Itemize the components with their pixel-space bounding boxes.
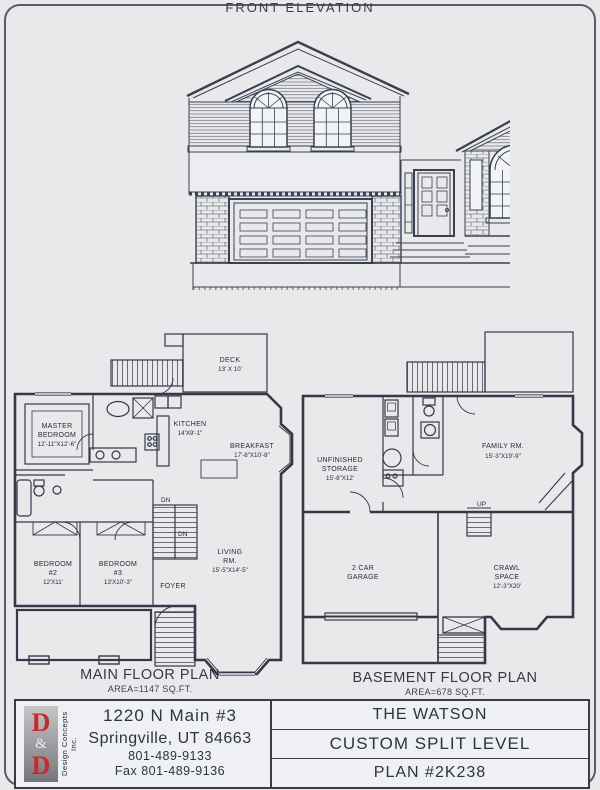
interior-walls-main — [15, 394, 153, 606]
plan-sheet: FRONT ELEVATION — [0, 0, 600, 790]
kitchen-counters — [145, 396, 237, 478]
logo-company-name-vertical: Design Concepts Inc. — [60, 706, 72, 782]
master-bedroom-label2: BEDROOM — [38, 432, 76, 439]
deck-label: DECK — [220, 357, 241, 364]
interior-walls-basement — [303, 396, 573, 663]
entry-door — [390, 160, 470, 263]
main-stairs — [153, 505, 197, 559]
logo-letter-d2: D — [32, 753, 51, 779]
logo-letter-d1: D — [32, 710, 51, 736]
breakfast-label: BREAKFAST — [230, 443, 274, 450]
living-room-size: 15'-5"X14'-5" — [212, 567, 248, 574]
kitchen-size: 14'X9'-1" — [178, 430, 203, 437]
garage-label: 2 CAR — [352, 565, 374, 572]
bedroom2-label: BEDROOM — [34, 561, 72, 568]
crawl-space-label: CRAWL — [494, 565, 521, 572]
basement-floor-plan-drawing: UNFINISHED STORAGE 15'-8"X12' FAMILY RM.… — [295, 330, 595, 680]
main-floor-plan-caption: MAIN FLOOR PLAN AREA=1147 SQ.FT. — [5, 667, 295, 694]
front-elevation-drawing — [90, 10, 510, 290]
crawl-space-size: 12'-3"X20' — [493, 583, 521, 590]
stairs-dn-label-2: DN — [178, 531, 188, 538]
kitchen-label: KITCHEN — [174, 421, 207, 428]
plan-name: THE WATSON — [272, 701, 588, 729]
garage-door — [229, 199, 372, 263]
basement-floor-plan-area: AREA=678 SQ.FT. — [295, 687, 595, 697]
company-address: 1220 N Main #3 Springville, UT 84663 801… — [74, 704, 266, 779]
deck-stairs-basement — [407, 362, 485, 392]
plan-type: CUSTOM SPLIT LEVEL — [272, 729, 588, 758]
ground-and-footing — [190, 263, 510, 290]
brick-lower-level — [196, 196, 401, 263]
stairs-dn-label-1: DN — [161, 497, 171, 504]
family-room-label: FAMILY RM. — [482, 443, 524, 450]
garage-label2: GARAGE — [347, 574, 379, 581]
breakfast-bay-inner — [279, 426, 290, 472]
phone-number: 801-489-9133 — [74, 749, 266, 764]
address-line-2: Springville, UT 84663 — [74, 728, 266, 749]
bedroom2-size: 12'X11' — [43, 579, 63, 586]
closets — [33, 522, 145, 535]
deck-outline-basement — [485, 332, 573, 392]
stairs-up-label: UP — [477, 501, 486, 508]
front-elevation-label: FRONT ELEVATION — [0, 0, 600, 15]
company-logo: D & D — [24, 706, 58, 782]
fax-number: Fax 801-489-9136 — [74, 764, 266, 779]
storage-size: 15'-8"X12' — [326, 475, 354, 482]
master-bedroom-label: MASTER — [42, 423, 73, 430]
master-bedroom-size: 12'-11"X12'-6" — [38, 441, 77, 448]
utility-fixtures — [383, 398, 439, 486]
bedroom3-number: #3 — [114, 570, 122, 577]
basement-floor-plan-caption: BASEMENT FLOOR PLAN AREA=678 SQ.FT. — [295, 670, 595, 697]
plan-number: PLAN #2K238 — [272, 758, 588, 787]
crawl-space-label2: SPACE — [495, 574, 520, 581]
window-well-and-steps — [438, 617, 485, 663]
address-line-1: 1220 N Main #3 — [74, 704, 266, 728]
title-block-company-cell: D & D Design Concepts Inc. 1220 N Main #… — [16, 701, 272, 787]
title-block-plan-cell: THE WATSON CUSTOM SPLIT LEVEL PLAN #2K23… — [272, 701, 588, 787]
foyer-label: FOYER — [160, 583, 186, 590]
deck-size: 13' X 10' — [218, 366, 242, 373]
arched-window-right — [311, 90, 354, 152]
title-block: D & D Design Concepts Inc. 1220 N Main #… — [14, 699, 590, 789]
main-floor-plan-title: MAIN FLOOR PLAN — [5, 667, 295, 683]
main-floor-plan-area: AREA=1147 SQ.FT. — [5, 684, 295, 694]
basement-floor-plan-title: BASEMENT FLOOR PLAN — [295, 670, 595, 686]
basement-stairs-up — [467, 508, 491, 536]
bedroom3-label: BEDROOM — [99, 561, 137, 568]
right-wing-gable — [456, 119, 510, 263]
breakfast-size: 17'-8"X10'-8" — [234, 452, 270, 459]
bedroom2-number: #2 — [49, 570, 57, 577]
main-floor-plan-drawing: DECK 13' X 10' MASTER BEDROOM 12'-11"X12… — [5, 330, 295, 680]
family-room-window-seat — [539, 473, 573, 510]
living-room-label: LIVING — [218, 549, 243, 556]
bedroom3-size: 13'X10'-3" — [104, 579, 132, 586]
storage-label2: STORAGE — [322, 466, 358, 473]
living-room-label2: RM. — [223, 558, 237, 565]
upper-siding-wall — [188, 74, 401, 194]
garage-door-basement — [325, 613, 417, 620]
arched-window-left — [247, 90, 290, 152]
family-room-size: 15'-3"X19'-9" — [485, 453, 521, 460]
porch-and-steps — [17, 610, 195, 666]
logo-ampersand: & — [35, 737, 47, 752]
storage-label: UNFINISHED — [317, 457, 363, 464]
